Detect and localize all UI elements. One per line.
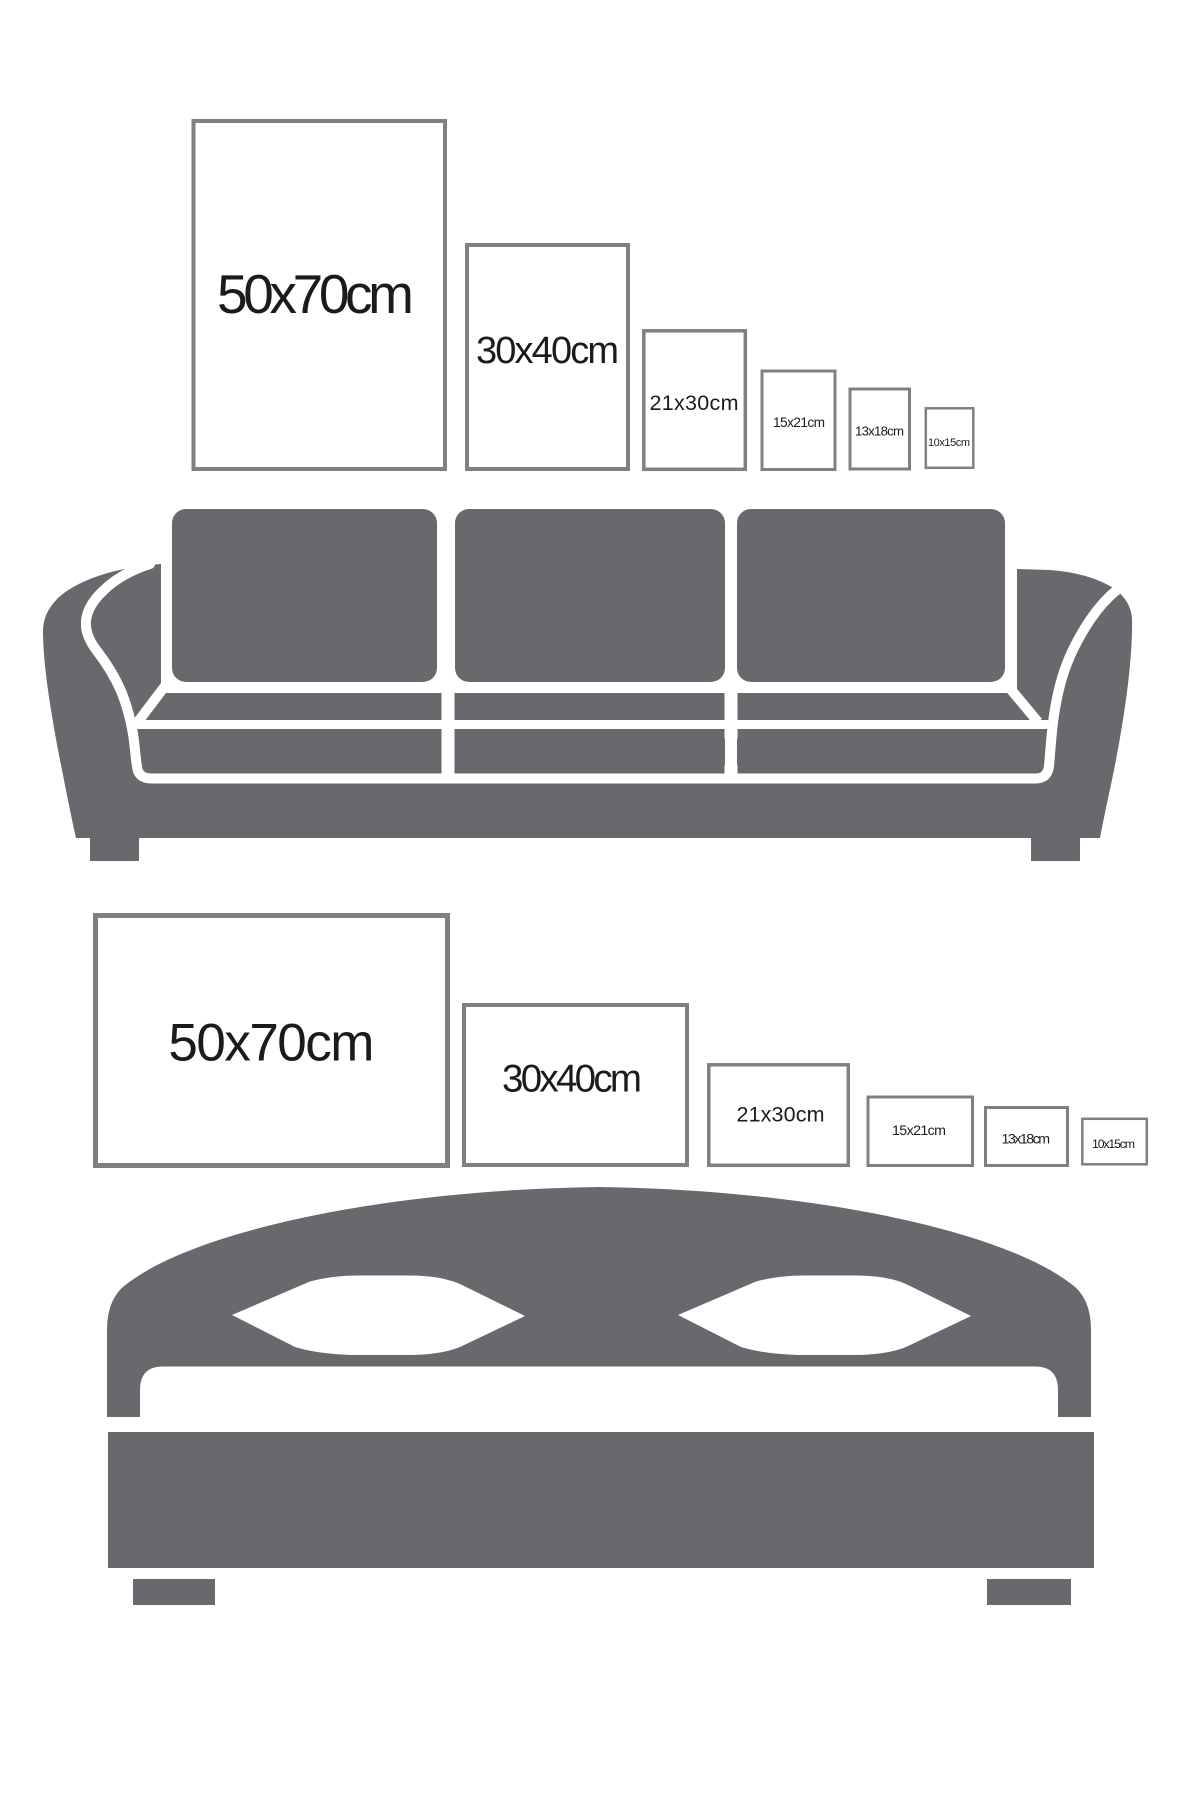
svg-text:13x18cm: 13x18cm — [855, 423, 904, 438]
svg-text:21x30cm: 21x30cm — [650, 391, 739, 415]
svg-text:15x21cm: 15x21cm — [773, 415, 825, 430]
svg-text:50x70cm: 50x70cm — [217, 263, 414, 325]
svg-text:21x30cm: 21x30cm — [737, 1103, 825, 1127]
svg-text:50x70cm: 50x70cm — [168, 1014, 374, 1073]
svg-text:30x40cm: 30x40cm — [476, 330, 619, 372]
svg-text:10x15cm: 10x15cm — [928, 437, 970, 449]
svg-text:13x18cm: 13x18cm — [1002, 1131, 1051, 1147]
svg-text:15x21cm: 15x21cm — [892, 1123, 946, 1139]
svg-text:30x40cm: 30x40cm — [502, 1058, 642, 1101]
svg-text:10x15cm: 10x15cm — [1092, 1137, 1135, 1151]
